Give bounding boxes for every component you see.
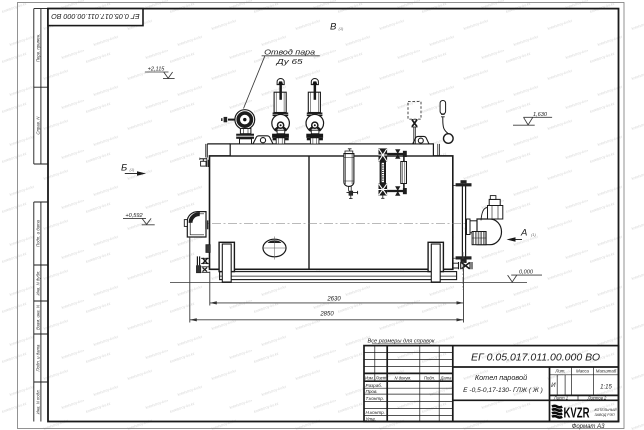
svg-text:Утв.: Утв. [366, 416, 376, 421]
svg-text:Взам. инв. N: Взам. инв. N [35, 304, 40, 330]
svg-text:Масштаб: Масштаб [596, 369, 617, 374]
svg-text:Масса: Масса [576, 369, 590, 374]
svg-text:Дата: Дата [439, 375, 452, 380]
svg-text:Лист: Лист [375, 375, 387, 380]
svg-text:Ду 65: Ду 65 [275, 57, 304, 66]
svg-text:ЕГ 0.05.017.011.00.000 ВО: ЕГ 0.05.017.011.00.000 ВО [51, 12, 140, 21]
svg-text:Пров.: Пров. [366, 389, 378, 394]
svg-text:Листов 2: Листов 2 [587, 396, 607, 401]
svg-text:(1): (1) [339, 26, 345, 31]
svg-text:KVZR: KVZR [564, 406, 590, 422]
svg-text:(1): (1) [531, 232, 537, 237]
svg-text:И: И [551, 382, 556, 389]
svg-text:Разраб.: Разраб. [366, 383, 383, 388]
svg-text:Изм.: Изм. [365, 375, 374, 380]
svg-text:Котел паровой: Котел паровой [475, 373, 527, 382]
svg-text:Подп.: Подп. [424, 375, 435, 380]
svg-text:Е -0,5-0,17-130- ГЛЖ ( Ж ): Е -0,5-0,17-130- ГЛЖ ( Ж ) [463, 387, 543, 394]
svg-text:Перв. примен.: Перв. примен. [35, 34, 40, 63]
svg-text:Инв. N подл.: Инв. N подл. [35, 389, 40, 414]
svg-text:Лит.: Лит. [554, 369, 565, 374]
svg-text:Лист 1: Лист 1 [553, 396, 568, 401]
svg-text:Отвод пара: Отвод пара [264, 47, 315, 56]
svg-text:ЗАВОД РЭП: ЗАВОД РЭП [595, 413, 616, 417]
svg-text:Формат А3: Формат А3 [572, 424, 605, 430]
svg-text:Инв. N дубл.: Инв. N дубл. [35, 271, 40, 296]
svg-text:(1): (1) [130, 167, 136, 172]
svg-text:А: А [520, 227, 527, 238]
svg-text:2850: 2850 [319, 311, 334, 317]
svg-text:Подп. и дата: Подп. и дата [35, 344, 40, 372]
svg-text:2630: 2630 [326, 296, 341, 302]
svg-text:1:15: 1:15 [600, 385, 612, 391]
svg-text:Б: Б [121, 162, 127, 173]
svg-text:Подп. и дата: Подп. и дата [35, 219, 40, 247]
svg-text:Справ. N: Справ. N [35, 116, 40, 135]
svg-text:Т.контр.: Т.контр. [366, 396, 385, 401]
svg-text:Все размеры для справок: Все размеры для справок [368, 338, 435, 344]
svg-text:КОТЕЛЬНЫЙ: КОТЕЛЬНЫЙ [595, 408, 618, 412]
svg-text:ЕГ 0.05.017.011.00.000 ВО: ЕГ 0.05.017.011.00.000 ВО [471, 352, 600, 364]
svg-text:Н.контр.: Н.контр. [366, 410, 385, 415]
svg-text:N докум.: N докум. [395, 375, 412, 380]
svg-text:В: В [330, 21, 337, 32]
